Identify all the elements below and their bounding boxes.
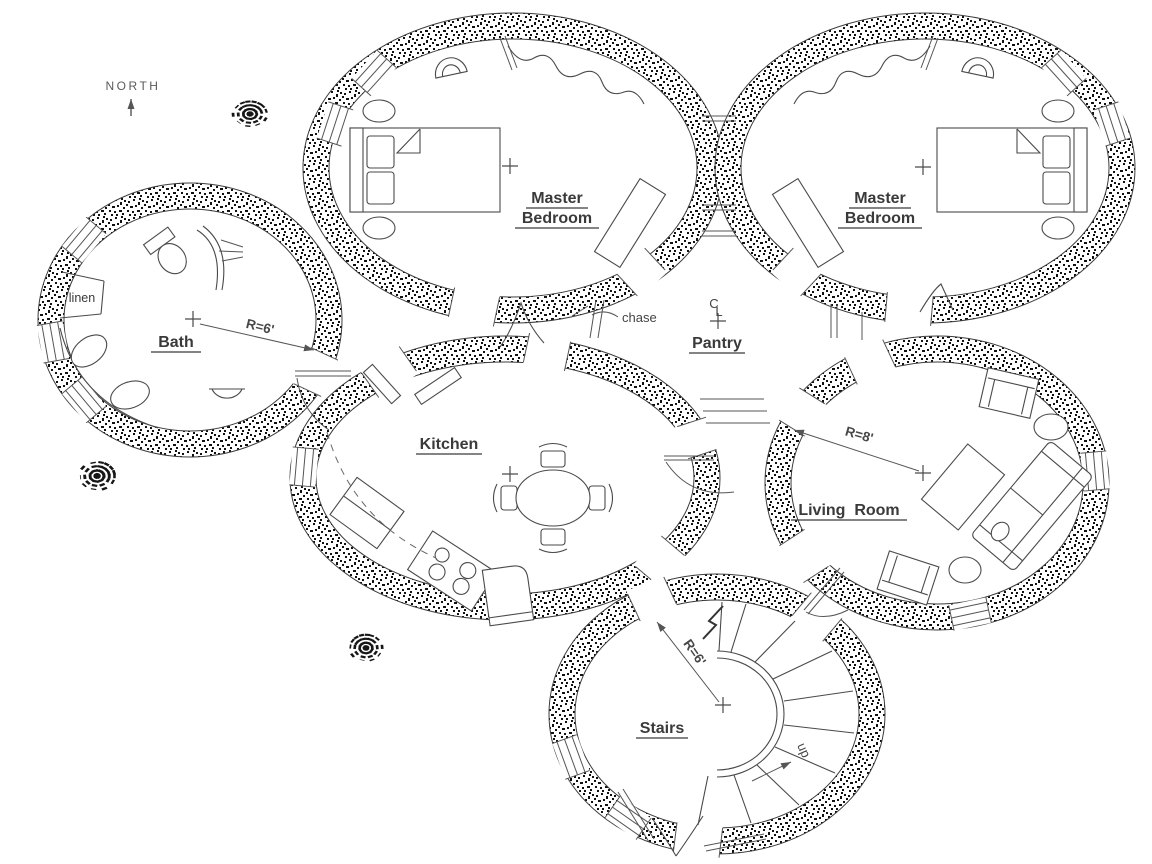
master-bedroom-right-label-line2: Bedroom bbox=[845, 210, 915, 227]
master-bedroom-left-label-line1: Master bbox=[531, 190, 583, 207]
pantry-label: Pantry bbox=[692, 335, 742, 352]
pantry-centerline-l: L bbox=[715, 304, 722, 319]
chase-label: chase bbox=[622, 310, 657, 325]
side-table-icon bbox=[949, 557, 981, 583]
floor-plan-drawing: NORTH linen Bath R=6' Master Bedroom Mas… bbox=[0, 0, 1152, 864]
counter-icon bbox=[482, 564, 533, 626]
kitchen-label: Kitchen bbox=[420, 436, 479, 453]
door-opening bbox=[673, 819, 723, 860]
linen-label: linen bbox=[69, 291, 95, 305]
side-table-icon bbox=[1042, 100, 1074, 122]
door-opening bbox=[885, 289, 934, 329]
stairs-label: Stairs bbox=[640, 720, 685, 737]
master-bedroom-right-label-line1: Master bbox=[854, 190, 906, 207]
side-table-icon bbox=[1034, 414, 1068, 440]
side-table-icon bbox=[363, 100, 395, 122]
north-label: NORTH bbox=[106, 79, 161, 93]
master-bedroom-left-label-line2: Bedroom bbox=[522, 210, 592, 227]
side-table-icon bbox=[1042, 217, 1074, 239]
bath-label: Bath bbox=[158, 334, 194, 351]
window-icon bbox=[289, 447, 318, 487]
side-table-icon bbox=[363, 217, 395, 239]
living-room-label: Living Room bbox=[798, 502, 899, 519]
floor-plan-canvas: NORTH linen Bath R=6' Master Bedroom Mas… bbox=[0, 0, 1152, 864]
